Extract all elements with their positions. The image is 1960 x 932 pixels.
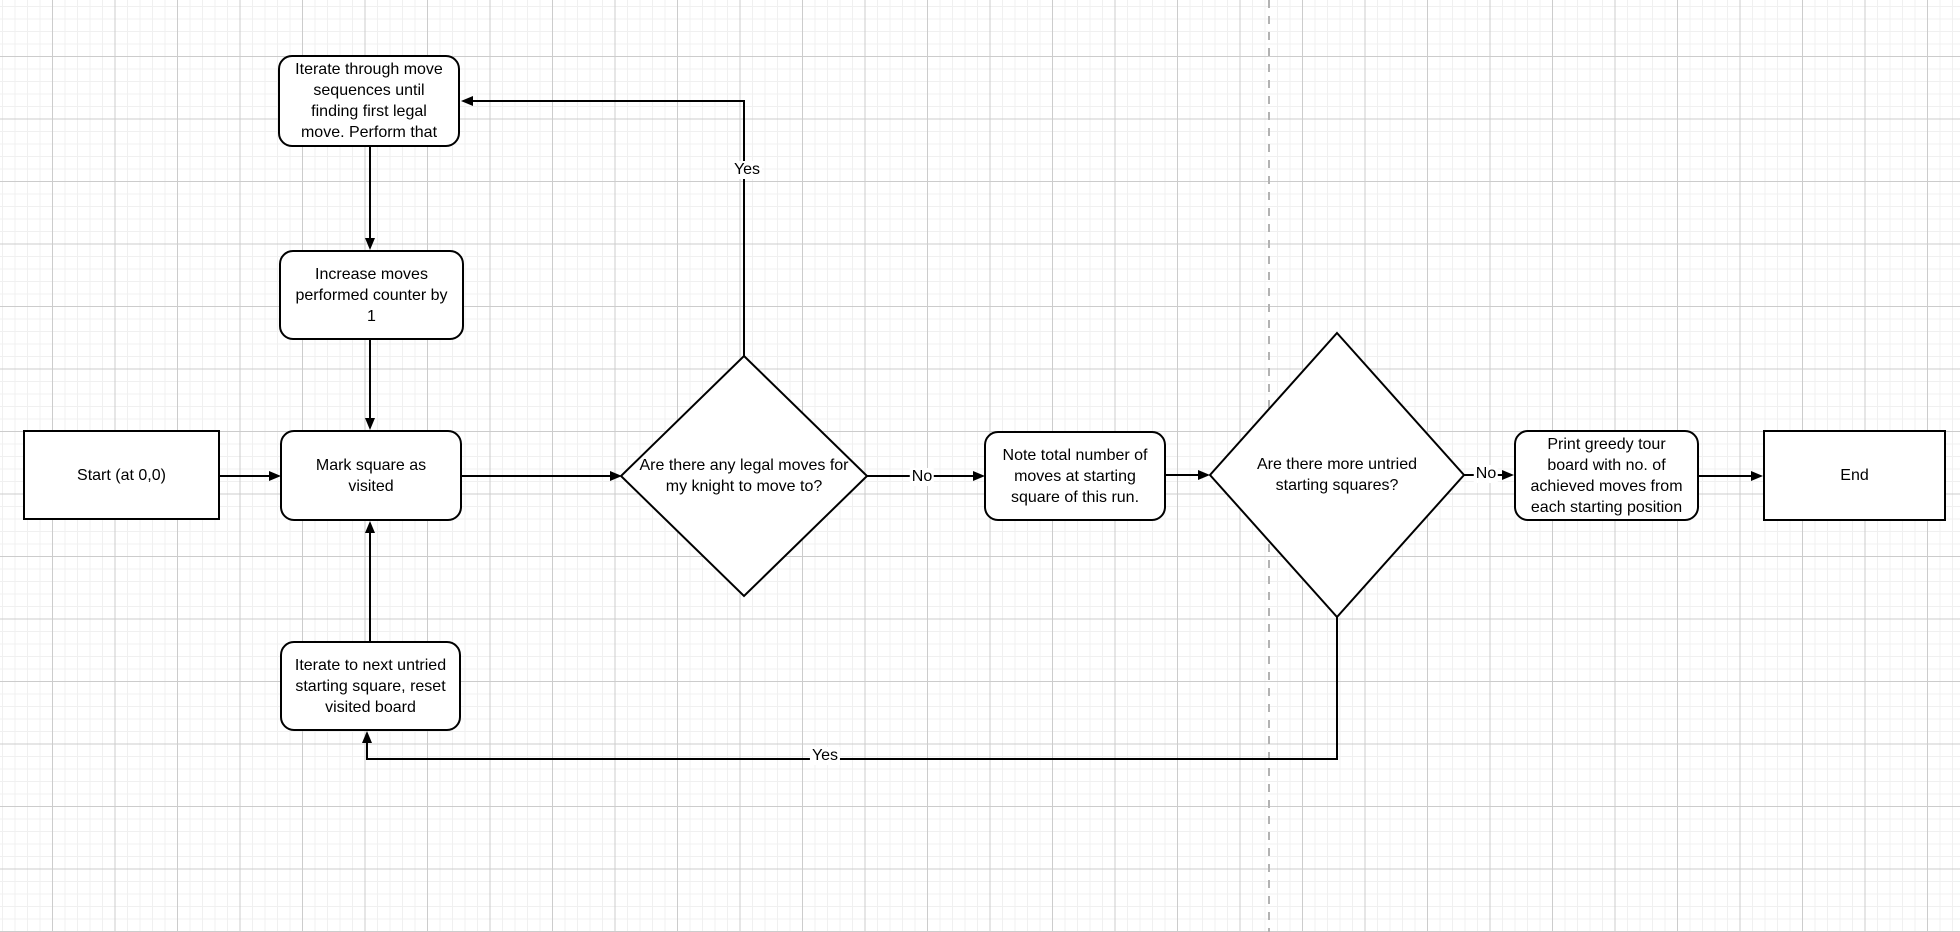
edge-segment	[366, 758, 1338, 760]
node-mark-square-visited[interactable]: Mark square as visited	[280, 430, 462, 521]
decision-legal-moves[interactable]: Are there any legal moves for my knight …	[621, 356, 867, 596]
node-label: Increase moves performed counter by 1	[295, 264, 447, 327]
node-iterate-next-square[interactable]: Iterate to next untried starting square,…	[280, 641, 461, 731]
arrowhead-icon	[461, 96, 473, 106]
arrowhead-icon	[1502, 470, 1514, 480]
edge-label-no[interactable]: No	[910, 468, 934, 486]
edge-segment	[472, 100, 745, 102]
arrowhead-icon	[1198, 470, 1210, 480]
node-end[interactable]: End	[1763, 430, 1946, 521]
edge-segment	[369, 339, 371, 421]
arrowhead-icon	[365, 521, 375, 533]
node-note-total-moves[interactable]: Note total number of moves at starting s…	[984, 431, 1166, 521]
diagram-canvas[interactable]: Yes No No Yes Start (at 0,0) Ite	[0, 0, 1960, 932]
edge-segment	[1166, 474, 1200, 476]
node-increase-counter[interactable]: Increase moves performed counter by 1	[279, 250, 464, 340]
node-label: Iterate through move sequences until fin…	[295, 59, 443, 143]
node-label: Are there more untried starting squares?	[1257, 454, 1417, 496]
edge-segment	[219, 475, 273, 477]
arrowhead-icon	[1751, 471, 1763, 481]
node-print-board[interactable]: Print greedy tour board with no. of achi…	[1514, 430, 1699, 521]
node-label: End	[1840, 465, 1868, 486]
node-start[interactable]: Start (at 0,0)	[23, 430, 220, 520]
edge-label-yes[interactable]: Yes	[732, 161, 762, 179]
arrowhead-icon	[362, 731, 372, 743]
edge-segment	[366, 742, 368, 760]
node-label: Print greedy tour board with no. of achi…	[1530, 434, 1682, 518]
edge-segment	[743, 100, 745, 356]
edge-segment	[369, 533, 371, 641]
node-label: Note total number of moves at starting s…	[1003, 445, 1148, 508]
node-label: Mark square as visited	[316, 455, 426, 497]
decision-untried-squares[interactable]: Are there more untried starting squares?	[1210, 333, 1464, 617]
node-label: Are there any legal moves for my knight …	[640, 455, 849, 497]
edge-segment	[1699, 475, 1753, 477]
edge-segment	[1336, 617, 1338, 760]
node-iterate-move-sequences[interactable]: Iterate through move sequences until fin…	[278, 55, 460, 147]
node-label: Start (at 0,0)	[77, 465, 166, 486]
edge-segment	[461, 475, 613, 477]
edge-segment	[369, 146, 371, 242]
edge-label-no[interactable]: No	[1474, 465, 1498, 483]
edge-label-yes[interactable]: Yes	[810, 747, 840, 765]
arrowhead-icon	[365, 418, 375, 430]
arrowhead-icon	[365, 238, 375, 250]
node-label: Iterate to next untried starting square,…	[295, 655, 446, 718]
